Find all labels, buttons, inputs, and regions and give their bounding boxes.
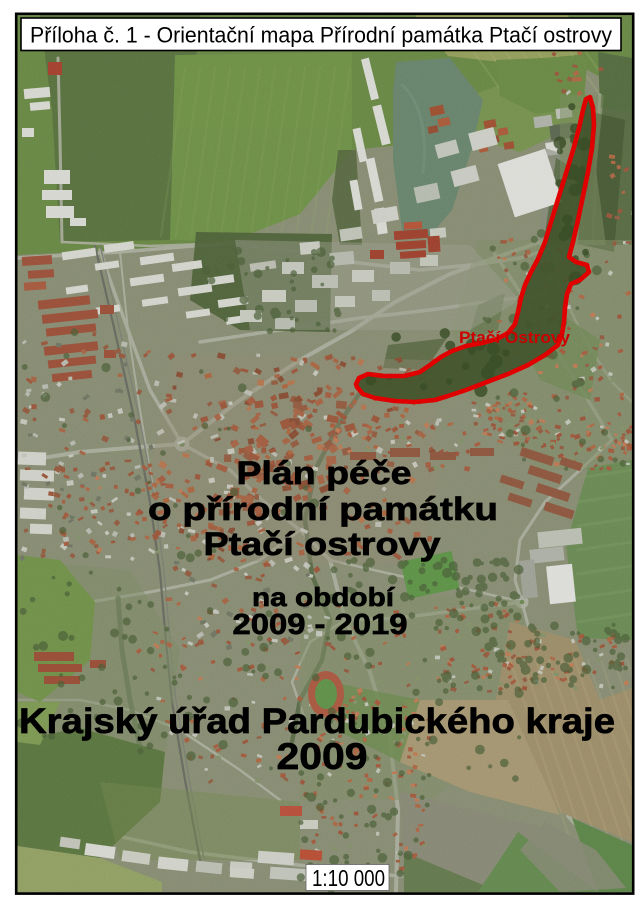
svg-text:Plán péče: Plán péče (237, 455, 412, 491)
svg-text:Ptačí Ostrovy: Ptačí Ostrovy (459, 328, 571, 347)
svg-text:Příloha č. 1 - Orientační mapa: Příloha č. 1 - Orientační mapa Přírodní … (30, 23, 613, 48)
svg-text:o přírodní památku: o přírodní památku (148, 491, 498, 527)
svg-text:na období: na období (252, 582, 395, 612)
svg-text:Ptačí ostrovy: Ptačí ostrovy (204, 526, 441, 562)
svg-text:2009: 2009 (277, 736, 368, 777)
svg-text:2009 - 2019: 2009 - 2019 (233, 609, 408, 641)
svg-text:1:10 000: 1:10 000 (312, 865, 385, 891)
